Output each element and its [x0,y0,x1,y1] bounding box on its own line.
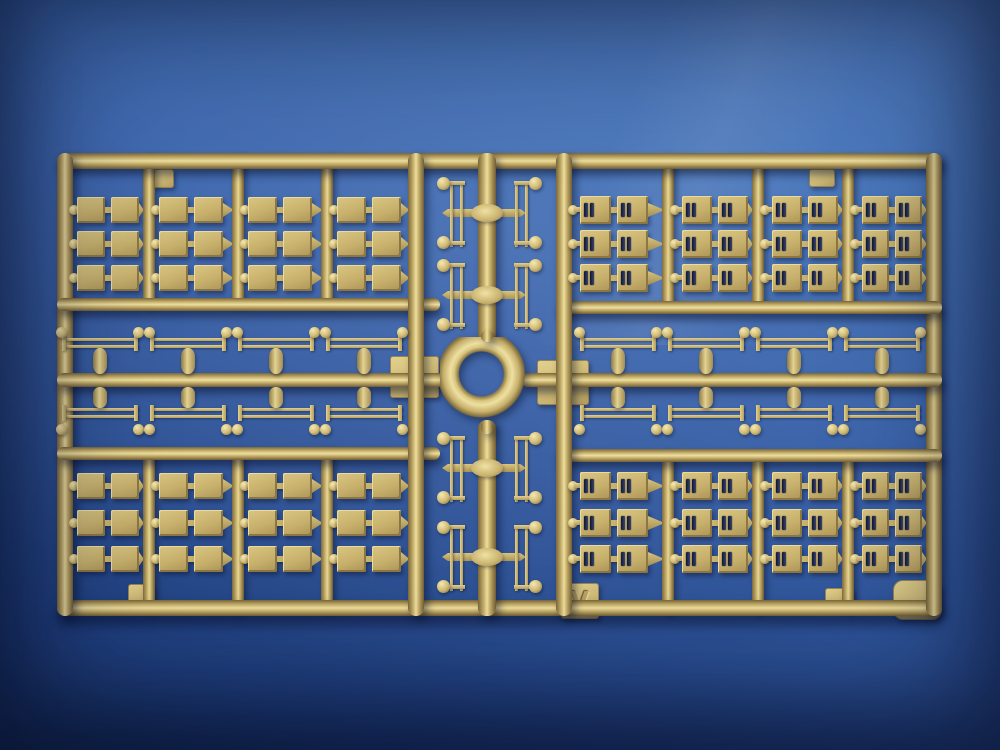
panel-part [159,197,188,223]
ladder-rung [449,585,465,589]
grid-divider [842,449,854,612]
vent-slot [692,203,696,217]
axle-knob [56,327,67,338]
vent-slot [818,516,822,530]
ladder-rung [449,525,465,529]
runner-bulge [471,548,503,566]
axle-stem [787,387,801,408]
axle-knob [915,424,926,435]
ladder-disc [437,491,450,504]
runner-mid-right [521,373,942,387]
panel-part [77,265,105,291]
ladder-rail [460,181,463,247]
vent-slot [722,479,726,493]
panel-part [77,231,105,257]
vent-slot [872,203,876,217]
panel-part [159,265,188,291]
vent-slot [590,516,594,530]
vent-slot [722,237,726,251]
ladder-disc [437,236,450,249]
vent-slot [782,203,786,217]
gate-taper [648,479,662,493]
grid-divider [232,447,244,612]
axle-endcap [326,405,330,421]
axle-endcap [756,405,760,421]
vent-slot [866,203,870,217]
axle-endcap [150,405,154,421]
panel-part [283,231,312,257]
axle-knob [739,327,750,338]
gate-taper [312,203,321,217]
axle-knob [144,424,155,435]
vent-slot [872,516,876,530]
runner-bulge [471,204,503,222]
ladder-disc [437,521,450,534]
vent-slot [627,552,631,566]
vent-slot [782,271,786,285]
ladder-rail [515,436,518,502]
ladder-rail [460,263,463,329]
gate-taper [401,203,408,217]
axle-knob [56,424,67,435]
ladder-rung [449,241,465,245]
ring-stub-top [481,330,493,342]
vent-slot [728,479,732,493]
vent-slot [899,552,903,566]
axle-endcap [238,405,242,421]
axle-knob [574,424,585,435]
axle-rail [238,415,314,418]
axle-stem [269,348,283,374]
grid-divider [842,153,854,308]
axle-rail [238,338,314,341]
gate-taper [648,552,662,566]
vent-slot [584,203,588,217]
axle-rail [844,415,920,418]
vent-slot [584,516,588,530]
vent-slot [866,552,870,566]
vent-slot [872,271,876,285]
axle-stem [93,348,107,374]
vent-slot [866,271,870,285]
ladder-disc [437,432,450,445]
ladder-rung [449,263,465,267]
molding-tab [809,169,835,187]
axle-stem [611,387,625,408]
grid-divider [321,153,333,306]
axle-knob [750,424,761,435]
axle-endcap [668,405,672,421]
panel-part [372,265,401,291]
panel-part [111,231,139,257]
vent-slot [584,479,588,493]
vent-slot [899,237,903,251]
grid-divider [662,153,674,308]
vent-slot [905,552,909,566]
panel-part [248,473,277,499]
vent-slot [776,203,780,217]
axle-knob [320,424,331,435]
axle-rail [756,408,832,411]
ladder-disc [529,259,542,272]
ladder-rail [515,525,518,591]
vent-slot [866,516,870,530]
runner-left-lower [57,447,440,460]
axle-rail [844,338,920,341]
runner-right-grid-bottom [557,301,942,314]
grid-divider [662,449,674,612]
vent-slot [776,479,780,493]
axle-knob [915,327,926,338]
vent-slot [722,552,726,566]
sprue: V [0,0,1000,750]
panel-part [283,510,312,536]
gate-taper [223,479,232,493]
axle-rail [668,338,744,341]
vent-slot [866,479,870,493]
axle-rail [580,338,656,341]
ladder-disc [529,318,542,331]
axle-stem [93,387,107,408]
axle-knob [827,424,838,435]
vent-slot [584,552,588,566]
axle-knob [750,327,761,338]
axle-stem [875,387,889,408]
center-ring [440,337,528,425]
runner-bulge [471,459,503,477]
vent-slot [621,479,625,493]
ladder-disc [529,521,542,534]
gate-taper [223,516,232,530]
axle-knob [133,327,144,338]
gate-taper [312,552,321,566]
panel-part [283,265,312,291]
axle-endcap [916,405,920,421]
ladder-rung [449,436,465,440]
axle-endcap [310,405,314,421]
axle-rail [668,408,744,411]
vent-slot [621,271,625,285]
vent-slot [621,237,625,251]
panel-part [337,473,366,499]
panel-part [194,231,223,257]
vent-slot [782,479,786,493]
axle-rail [150,415,226,418]
panel-part [111,197,139,223]
panel-part [194,265,223,291]
vent-slot [627,516,631,530]
ladder-rail [450,525,453,591]
gate-taper [648,271,662,285]
panel-part [337,231,366,257]
vent-slot [812,516,816,530]
axle-stem [357,348,371,374]
grid-divider [752,449,764,612]
axle-stem [699,387,713,408]
axle-rail [150,338,226,341]
axle-knob [574,327,585,338]
axle-rail [326,415,402,418]
vent-slot [818,237,822,251]
panel-part [337,546,366,572]
runner-bulge [471,286,503,304]
axle-endcap [222,405,226,421]
ladder-rail [450,436,453,502]
vent-slot [584,271,588,285]
vent-slot [686,203,690,217]
vent-slot [899,479,903,493]
panel-part [283,546,312,572]
panel-part [248,197,277,223]
axle-knob [827,327,838,338]
vent-slot [686,516,690,530]
vent-slot [818,479,822,493]
runner-left-grid-bottom [57,298,440,311]
axle-knob [397,424,408,435]
runner-right-lower [557,449,942,462]
vent-slot [621,552,625,566]
axle-stem [875,348,889,374]
vent-slot [627,271,631,285]
vent-slot [899,203,903,217]
vent-slot [621,203,625,217]
ladder-rail [515,263,518,329]
panel-part [194,473,223,499]
panel-part [194,546,223,572]
vent-slot [905,237,909,251]
vent-slot [722,203,726,217]
axle-knob [651,424,662,435]
vent-slot [692,237,696,251]
vent-slot [728,271,732,285]
axle-endcap [740,405,744,421]
axle-knob [662,424,673,435]
ladder-disc [529,491,542,504]
ladder-rail [525,263,528,329]
vent-slot [728,516,732,530]
ladder-disc [437,580,450,593]
axle-rail [580,415,656,418]
vent-slot [776,271,780,285]
ladder-disc [437,177,450,190]
ladder-rail [525,181,528,247]
ladder-rail [460,436,463,502]
panel-part [248,510,277,536]
gate-taper [648,237,662,251]
ladder-rung [449,496,465,500]
panel-part [111,510,139,536]
grid-divider [143,447,155,612]
vent-slot [899,271,903,285]
vent-slot [692,516,696,530]
panel-part [337,265,366,291]
axle-knob [397,327,408,338]
frame-rail-bottom [57,600,942,616]
gate-taper [312,237,321,251]
vent-slot [818,203,822,217]
frame-rail-top [57,153,942,169]
axle-knob [739,424,750,435]
panel-part [372,546,401,572]
vent-slot [728,237,732,251]
ladder-rung [514,525,530,529]
axle-knob [133,424,144,435]
gate-taper [401,552,408,566]
runner-vertical-right-center [556,153,572,616]
ladder-rung [514,263,530,267]
axle-rail [62,408,138,411]
grid-divider [321,447,333,612]
vent-slot [590,479,594,493]
axle-knob [838,327,849,338]
axle-rail [668,415,744,418]
panel-part [372,231,401,257]
ladder-rail [515,181,518,247]
ladder-rung [514,585,530,589]
gate-taper [223,552,232,566]
axle-stem [181,348,195,374]
vent-slot [590,271,594,285]
gate-taper [648,516,662,530]
panel-part [194,197,223,223]
ladder-rung [514,323,530,327]
photo-model-kit-sprue: V [0,0,1000,750]
panel-part [372,510,401,536]
vent-slot [776,237,780,251]
vent-slot [686,237,690,251]
panel-part [111,473,139,499]
panel-part [159,231,188,257]
panel-part [372,473,401,499]
ladder-rung [449,323,465,327]
ladder-rung [514,241,530,245]
axle-stem [269,387,283,408]
axle-stem [181,387,195,408]
vent-slot [818,271,822,285]
panel-part [77,197,105,223]
axle-stem [357,387,371,408]
vent-slot [692,479,696,493]
ladder-rail [525,525,528,591]
ladder-rung [449,181,465,185]
axle-knob [221,327,232,338]
grid-divider [232,153,244,306]
axle-rail [150,408,226,411]
axle-knob [221,424,232,435]
axle-endcap [398,405,402,421]
panel-part [248,231,277,257]
axle-knob [320,327,331,338]
vent-slot [812,271,816,285]
axle-stem [787,348,801,374]
vent-slot [627,237,631,251]
vent-slot [590,237,594,251]
vent-slot [590,203,594,217]
ladder-rung [514,181,530,185]
runner-vertical-center-upper [478,153,496,342]
runner-mid-left [57,373,445,387]
ring-stub-bottom [481,420,493,434]
ladder-rail [450,181,453,247]
vent-slot [590,552,594,566]
vent-slot [686,479,690,493]
panel-part [159,546,188,572]
axle-stem [699,348,713,374]
panel-part [248,265,277,291]
vent-slot [905,516,909,530]
panel-part [194,510,223,536]
ladder-disc [529,236,542,249]
axle-rail [756,338,832,341]
vent-slot [812,203,816,217]
ladder-disc [529,177,542,190]
axle-rail [844,408,920,411]
axle-rail [326,338,402,341]
gate-taper [312,479,321,493]
panel-part [283,473,312,499]
vent-slot [905,479,909,493]
runner-vertical-center-lower [478,420,496,616]
panel-part [111,546,139,572]
axle-rail [326,408,402,411]
vent-slot [692,271,696,285]
gate-taper [648,203,662,217]
panel-part [77,473,105,499]
vent-slot [866,237,870,251]
vent-slot [584,237,588,251]
vent-slot [692,552,696,566]
vent-slot [782,552,786,566]
axle-knob [309,424,320,435]
vent-slot [686,552,690,566]
gate-taper [401,479,408,493]
panel-part [159,473,188,499]
axle-rail [580,408,656,411]
gate-taper [401,271,408,285]
axle-knob [838,424,849,435]
panel-part [111,265,139,291]
axle-endcap [580,405,584,421]
gate-taper [223,271,232,285]
ladder-disc [437,318,450,331]
panel-part [77,546,105,572]
vent-slot [818,552,822,566]
gate-taper [401,516,408,530]
vent-slot [621,516,625,530]
gate-taper [401,237,408,251]
axle-rail [238,408,314,411]
axle-endcap [62,405,66,421]
axle-endcap [134,405,138,421]
ladder-rail [450,263,453,329]
axle-endcap [844,405,848,421]
ladder-disc [529,580,542,593]
ladder-rung [514,496,530,500]
vent-slot [872,479,876,493]
axle-knob [662,327,673,338]
vent-slot [812,237,816,251]
vent-slot [782,516,786,530]
ladder-disc [529,432,542,445]
vent-slot [627,203,631,217]
axle-endcap [828,405,832,421]
ladder-rail [525,436,528,502]
vent-slot [905,271,909,285]
vent-slot [627,479,631,493]
panel-part [337,510,366,536]
panel-part [283,197,312,223]
vent-slot [686,271,690,285]
